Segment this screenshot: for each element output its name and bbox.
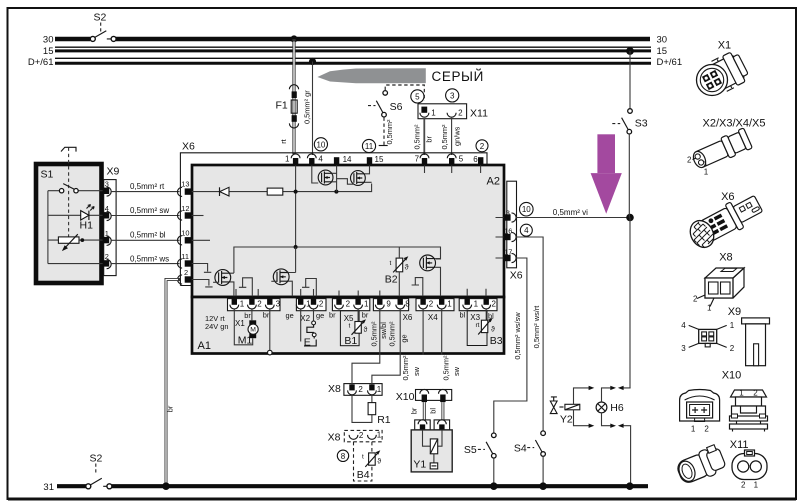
svg-text:D+/61: D+/61	[28, 57, 54, 68]
svg-text:rt: rt	[476, 322, 480, 329]
svg-text:5: 5	[415, 92, 420, 101]
svg-text:F1: F1	[276, 100, 288, 112]
svg-text:ϑ: ϑ	[364, 327, 368, 334]
svg-text:S6: S6	[390, 101, 403, 113]
svg-text:X3: X3	[470, 313, 480, 322]
svg-text:t: t	[390, 260, 392, 267]
svg-text:H6: H6	[610, 402, 624, 414]
svg-text:rt: rt	[279, 139, 288, 144]
svg-text:4: 4	[524, 226, 529, 235]
svg-text:sw: sw	[412, 366, 421, 376]
svg-text:1: 1	[447, 299, 452, 308]
svg-text:2: 2	[492, 299, 497, 308]
svg-text:15: 15	[375, 155, 384, 164]
svg-text:1: 1	[730, 321, 735, 330]
svg-text:0,5mm²: 0,5mm²	[369, 321, 378, 347]
svg-text:2: 2	[480, 142, 485, 151]
svg-text:0,5mm²: 0,5mm²	[412, 124, 421, 150]
svg-text:0,5mm²: 0,5mm²	[388, 321, 397, 347]
svg-text:10: 10	[181, 229, 189, 238]
svg-text:E: E	[304, 336, 311, 348]
svg-text:A2: A2	[487, 176, 500, 188]
svg-text:X1: X1	[235, 319, 245, 328]
svg-text:1: 1	[240, 299, 245, 308]
svg-text:bl: bl	[460, 311, 466, 320]
svg-text:14: 14	[343, 155, 352, 164]
svg-text:M1: M1	[238, 335, 253, 347]
svg-text:31: 31	[43, 482, 54, 493]
svg-text:1: 1	[704, 168, 709, 177]
svg-text:7: 7	[415, 155, 420, 164]
svg-text:2: 2	[257, 299, 262, 308]
svg-text:1: 1	[377, 385, 382, 394]
svg-text:1: 1	[754, 481, 759, 490]
svg-text:0,5mm² sw: 0,5mm² sw	[130, 206, 169, 215]
svg-text:0,5mm² ws: 0,5mm² ws	[130, 254, 169, 263]
svg-text:10: 10	[522, 205, 531, 214]
svg-text:ϑ: ϑ	[377, 458, 381, 465]
svg-text:Y1: Y1	[413, 459, 426, 471]
svg-text:br: br	[362, 310, 369, 319]
svg-text:8: 8	[341, 452, 346, 461]
svg-text:0,5mm²: 0,5mm²	[442, 355, 451, 381]
svg-text:0,5mm² rt: 0,5mm² rt	[130, 182, 165, 191]
svg-text:11: 11	[365, 142, 374, 151]
svg-text:M: M	[250, 327, 256, 334]
svg-text:S3: S3	[635, 118, 648, 130]
svg-text:6: 6	[473, 155, 478, 164]
svg-text:1: 1	[377, 430, 382, 439]
svg-text:1: 1	[691, 425, 696, 434]
svg-text:5: 5	[459, 155, 464, 164]
svg-text:br: br	[424, 135, 433, 142]
svg-text:11: 11	[181, 252, 189, 261]
svg-text:X6: X6	[510, 270, 523, 282]
svg-text:0,5mm² ws/rt: 0,5mm² ws/rt	[532, 306, 541, 349]
svg-text:br: br	[263, 311, 270, 320]
svg-text:X6: X6	[403, 313, 413, 322]
svg-text:15: 15	[657, 46, 668, 57]
svg-text:S4: S4	[514, 442, 527, 454]
svg-text:sw/bl: sw/bl	[379, 322, 388, 339]
svg-text:S1: S1	[41, 169, 54, 181]
svg-text:2: 2	[458, 109, 463, 118]
svg-text:S5: S5	[464, 444, 477, 456]
svg-text:3: 3	[681, 344, 686, 353]
svg-text:X8: X8	[328, 431, 341, 443]
svg-text:4: 4	[318, 155, 323, 164]
svg-text:bl: bl	[428, 408, 437, 414]
svg-text:X6: X6	[721, 191, 734, 203]
svg-text:X1: X1	[718, 40, 731, 52]
svg-text:9: 9	[386, 299, 391, 308]
svg-text:S2: S2	[90, 453, 103, 465]
svg-text:br: br	[244, 311, 251, 320]
svg-text:1: 1	[306, 299, 311, 308]
svg-text:gn/ws: gn/ws	[453, 126, 462, 146]
svg-text:1: 1	[285, 155, 290, 164]
svg-text:B4: B4	[357, 469, 370, 481]
svg-text:X6: X6	[182, 140, 195, 152]
svg-text:X10: X10	[722, 370, 742, 382]
svg-text:15: 15	[43, 46, 54, 57]
svg-text:ϑ: ϑ	[491, 327, 495, 334]
svg-text:2: 2	[429, 299, 434, 308]
svg-text:br: br	[410, 407, 419, 414]
svg-text:0,5mm²: 0,5mm²	[401, 355, 410, 381]
svg-text:0,5mm² ws/sw: 0,5mm² ws/sw	[513, 312, 522, 360]
svg-text:4: 4	[681, 321, 686, 330]
svg-text:ge: ge	[399, 334, 408, 342]
svg-text:1: 1	[364, 299, 369, 308]
svg-text:СЕРЫЙ: СЕРЫЙ	[432, 69, 484, 84]
svg-text:ge: ge	[316, 311, 324, 320]
svg-text:X9: X9	[728, 306, 741, 318]
svg-text:D+/61: D+/61	[657, 57, 683, 68]
svg-text:B1: B1	[344, 335, 357, 347]
svg-text:0,5mm² gr: 0,5mm² gr	[302, 90, 311, 124]
svg-text:8: 8	[405, 299, 410, 308]
svg-text:X2/X3/X4/X5: X2/X3/X4/X5	[703, 118, 766, 130]
svg-text:R1: R1	[377, 414, 391, 426]
svg-text:0,5mm² vi: 0,5mm² vi	[553, 208, 588, 217]
svg-text:2: 2	[358, 385, 363, 394]
svg-text:3: 3	[276, 299, 281, 308]
svg-text:1: 1	[739, 389, 744, 398]
svg-text:2: 2	[346, 299, 351, 308]
svg-text:ϑ: ϑ	[405, 265, 409, 272]
svg-text:2: 2	[184, 268, 188, 277]
svg-text:X11: X11	[730, 439, 749, 451]
svg-text:0,5mm²: 0,5mm²	[385, 119, 394, 145]
svg-text:X8: X8	[328, 383, 341, 395]
svg-text:sw: sw	[452, 366, 461, 376]
svg-text:H1: H1	[80, 220, 94, 232]
svg-text:X4: X4	[428, 313, 438, 322]
svg-text:2: 2	[741, 481, 746, 490]
svg-text:X10: X10	[396, 391, 415, 403]
svg-text:ge: ge	[286, 311, 294, 320]
svg-text:B2: B2	[385, 274, 398, 286]
svg-text:2: 2	[730, 344, 735, 353]
svg-text:S2: S2	[94, 11, 107, 23]
svg-text:10: 10	[316, 140, 325, 149]
svg-text:24V gn: 24V gn	[205, 322, 228, 331]
svg-text:12: 12	[181, 204, 189, 213]
svg-text:br: br	[329, 310, 336, 319]
svg-text:X11: X11	[470, 107, 488, 119]
svg-text:A1: A1	[198, 340, 211, 352]
svg-text:X2: X2	[300, 314, 310, 323]
svg-text:30: 30	[657, 35, 668, 46]
svg-text:2: 2	[319, 299, 324, 308]
svg-text:0,5mm² bl: 0,5mm² bl	[130, 231, 166, 240]
svg-text:Y2: Y2	[560, 413, 573, 425]
svg-text:2: 2	[687, 156, 692, 165]
svg-text:B3: B3	[490, 335, 503, 347]
svg-text:t: t	[362, 454, 364, 461]
svg-text:t: t	[349, 323, 351, 330]
svg-text:2: 2	[753, 389, 758, 398]
svg-text:3: 3	[450, 91, 455, 100]
svg-text:X8: X8	[719, 251, 732, 263]
svg-text:2: 2	[704, 425, 709, 434]
svg-text:1: 1	[474, 299, 479, 308]
svg-text:0,5mm²: 0,5mm²	[440, 124, 449, 150]
svg-text:2: 2	[359, 431, 364, 440]
svg-text:X9: X9	[107, 166, 120, 178]
svg-text:13: 13	[181, 180, 189, 189]
svg-text:1: 1	[431, 109, 436, 118]
svg-text:br: br	[165, 405, 174, 412]
svg-text:30: 30	[43, 35, 54, 46]
